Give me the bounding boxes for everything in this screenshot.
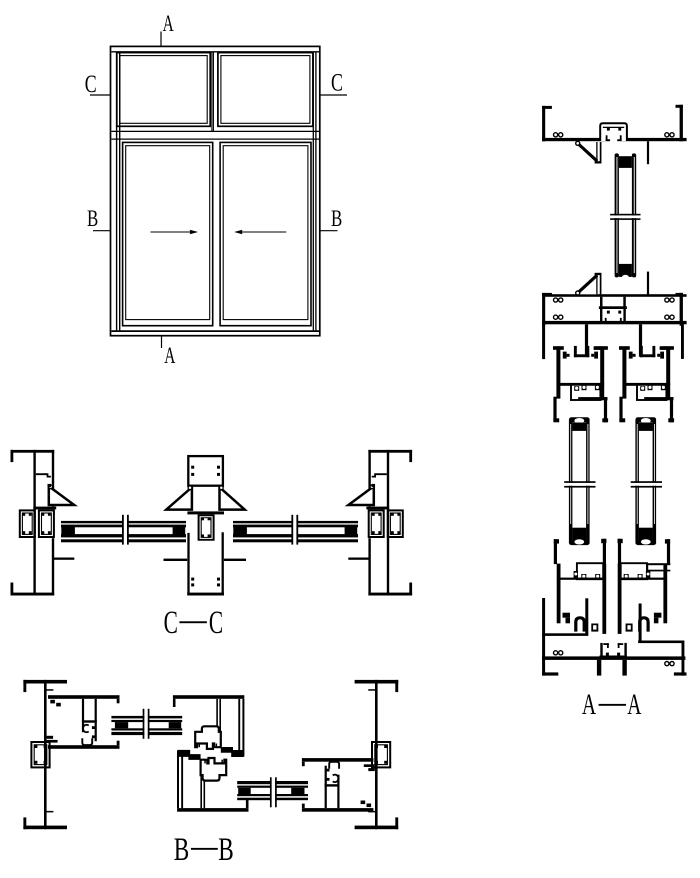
svg-text:A: A [164, 344, 175, 369]
svg-text:C: C [164, 605, 178, 640]
svg-text:B: B [331, 207, 342, 232]
svg-text:A: A [627, 689, 642, 721]
svg-text:B: B [174, 832, 190, 868]
svg-text:B: B [218, 832, 234, 868]
svg-text:C: C [209, 605, 223, 640]
svg-text:A: A [163, 12, 174, 37]
svg-text:C: C [331, 67, 343, 96]
svg-text:C: C [85, 69, 97, 98]
svg-text:B: B [87, 207, 98, 232]
svg-text:A: A [582, 689, 597, 721]
